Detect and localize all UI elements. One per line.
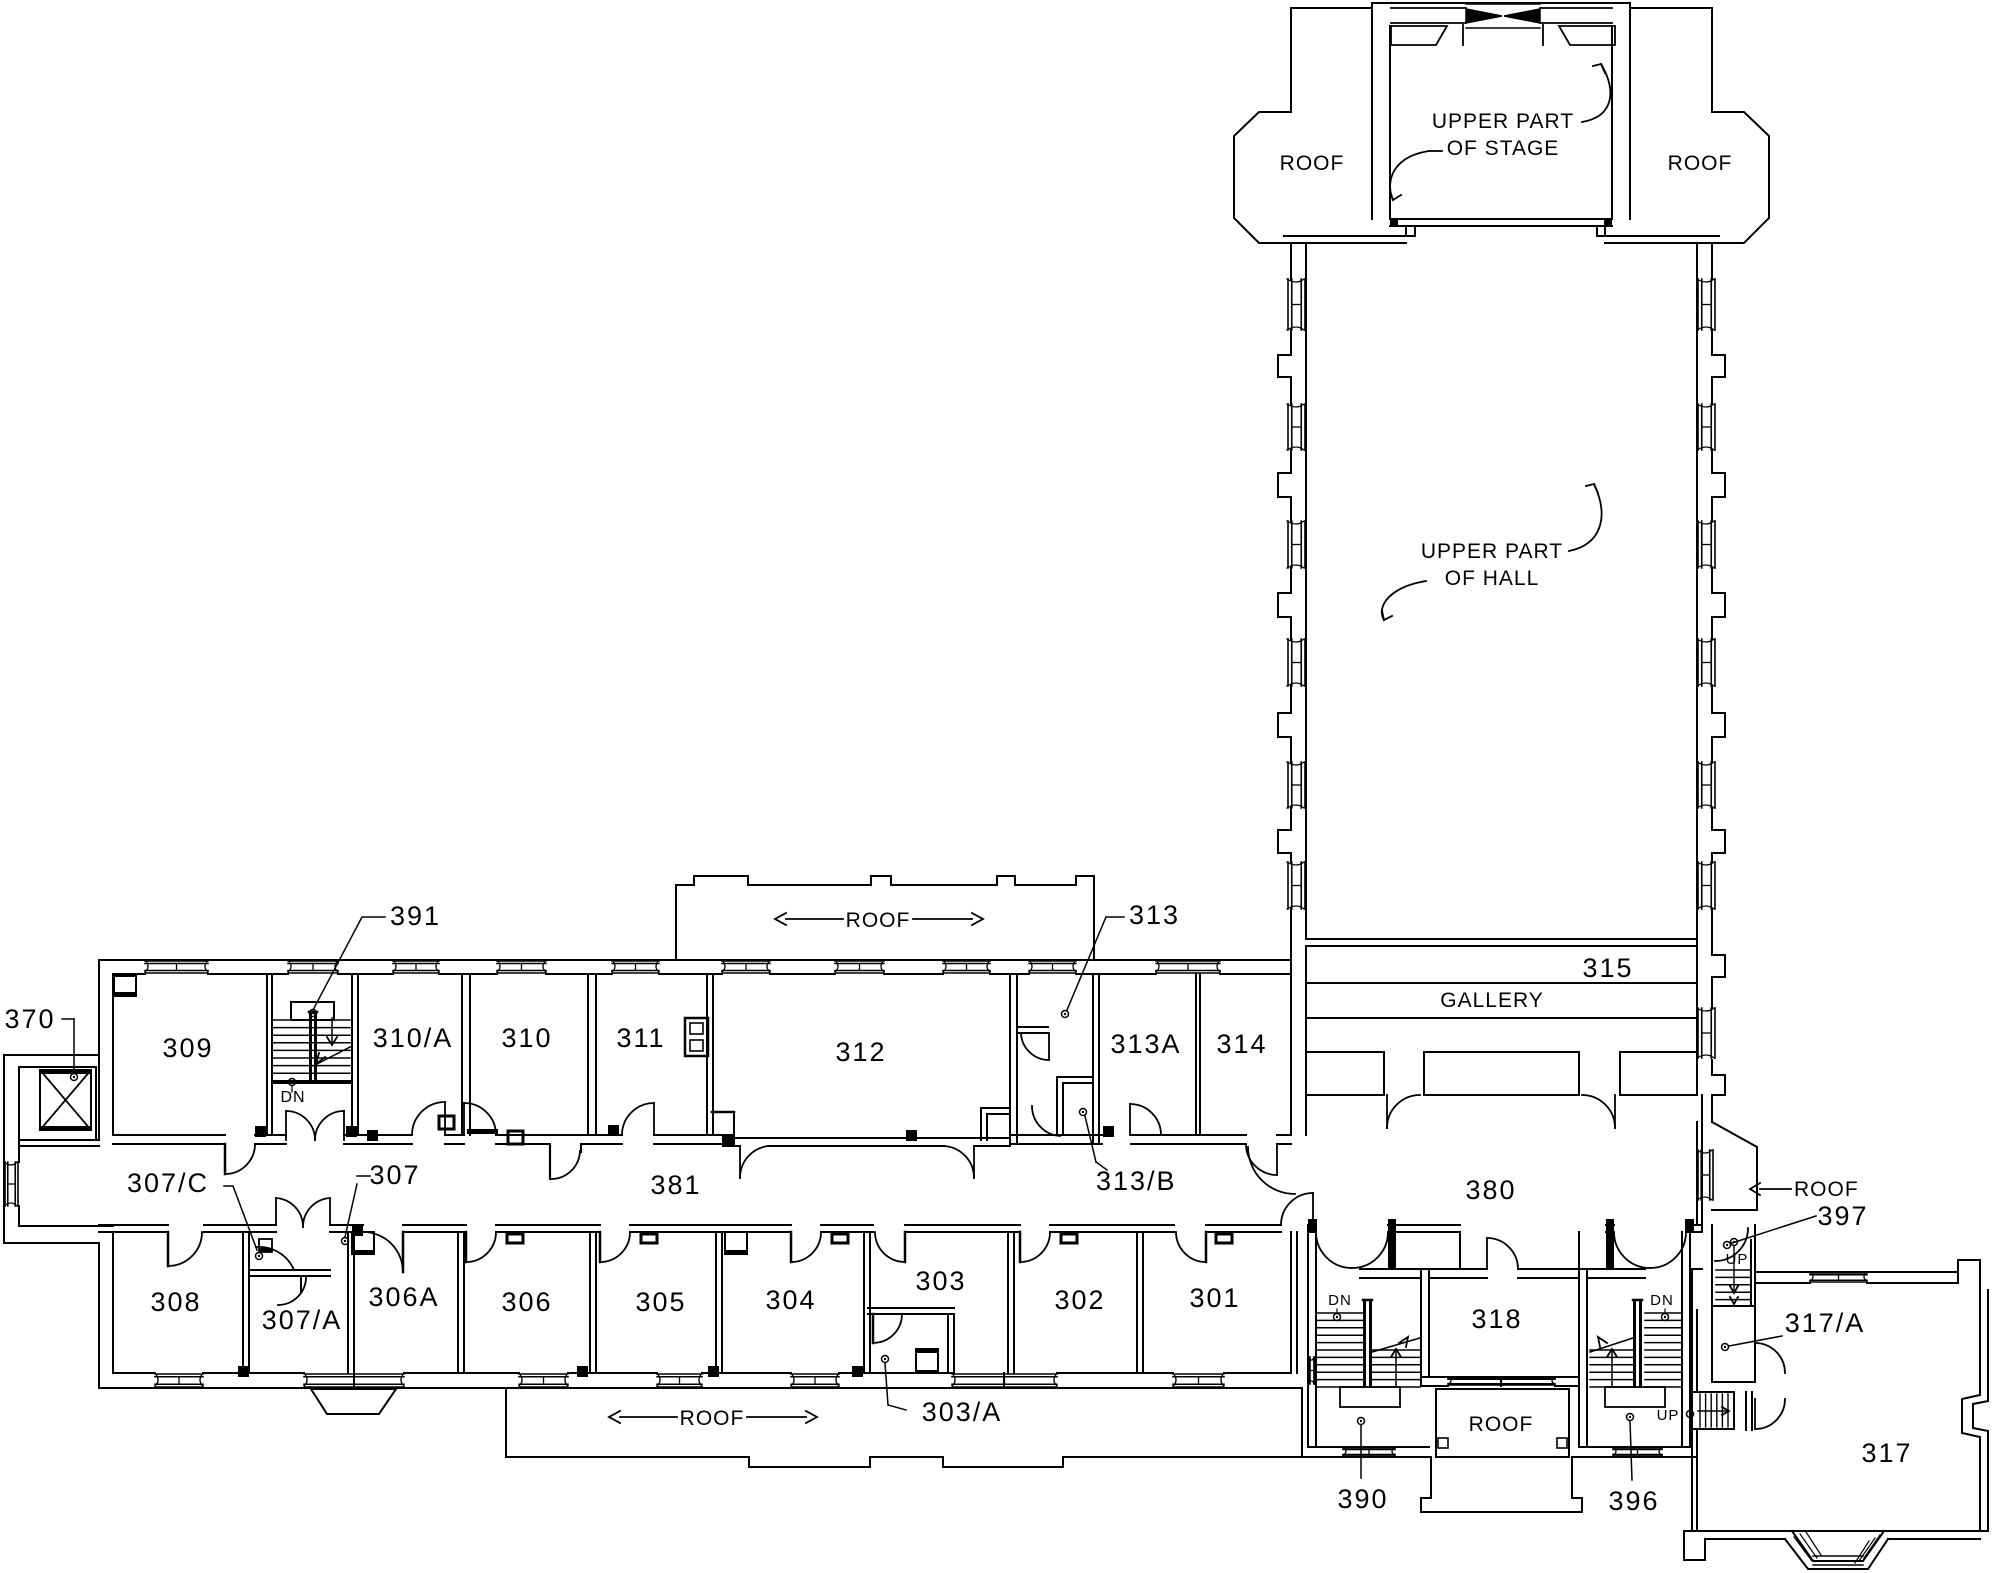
svg-text:ROOF: ROOF [1469, 1413, 1534, 1436]
svg-text:315: 315 [1582, 953, 1633, 983]
svg-text:397: 397 [1817, 1201, 1868, 1231]
svg-text:305: 305 [635, 1287, 686, 1317]
svg-text:302: 302 [1054, 1285, 1105, 1315]
svg-text:DN: DN [1328, 1292, 1352, 1309]
svg-text:391: 391 [390, 901, 441, 931]
svg-text:312: 312 [835, 1037, 886, 1067]
svg-text:381: 381 [650, 1170, 701, 1200]
svg-text:OF HALL: OF HALL [1445, 567, 1540, 590]
svg-text:306: 306 [501, 1287, 552, 1317]
svg-text:ROOF: ROOF [1668, 152, 1733, 175]
svg-text:370: 370 [4, 1004, 55, 1034]
svg-text:307: 307 [369, 1160, 420, 1190]
svg-text:ROOF: ROOF [846, 909, 911, 932]
svg-text:UP: UP [1657, 1407, 1680, 1424]
svg-text:317: 317 [1861, 1438, 1912, 1468]
svg-text:OF STAGE: OF STAGE [1447, 137, 1560, 160]
svg-text:307/C: 307/C [127, 1168, 209, 1198]
svg-text:ROOF: ROOF [1280, 152, 1345, 175]
svg-text:306A: 306A [368, 1282, 439, 1312]
svg-text:UPPER PART: UPPER PART [1432, 110, 1574, 133]
svg-text:313: 313 [1129, 900, 1180, 930]
svg-text:304: 304 [765, 1285, 816, 1315]
svg-text:ROOF: ROOF [680, 1407, 745, 1430]
svg-text:303/A: 303/A [922, 1397, 1003, 1427]
svg-text:308: 308 [150, 1287, 201, 1317]
svg-text:317/A: 317/A [1785, 1308, 1866, 1338]
svg-text:396: 396 [1608, 1486, 1659, 1516]
svg-text:318: 318 [1471, 1304, 1522, 1334]
svg-text:313/B: 313/B [1096, 1166, 1177, 1196]
svg-text:311: 311 [616, 1023, 665, 1053]
svg-text:310: 310 [501, 1023, 552, 1053]
svg-text:310/A: 310/A [373, 1023, 454, 1053]
svg-text:DN: DN [280, 1089, 305, 1106]
svg-text:UPPER PART: UPPER PART [1421, 540, 1563, 563]
svg-text:GALLERY: GALLERY [1440, 989, 1544, 1012]
svg-text:307/A: 307/A [262, 1305, 343, 1335]
svg-text:390: 390 [1337, 1484, 1388, 1514]
svg-text:301: 301 [1189, 1283, 1240, 1313]
svg-text:ROOF: ROOF [1794, 1178, 1859, 1201]
svg-text:313A: 313A [1110, 1029, 1181, 1059]
svg-text:314: 314 [1216, 1029, 1267, 1059]
svg-text:380: 380 [1465, 1175, 1516, 1205]
svg-text:303: 303 [915, 1266, 966, 1296]
svg-text:309: 309 [162, 1033, 213, 1063]
svg-text:DN: DN [1650, 1292, 1674, 1309]
